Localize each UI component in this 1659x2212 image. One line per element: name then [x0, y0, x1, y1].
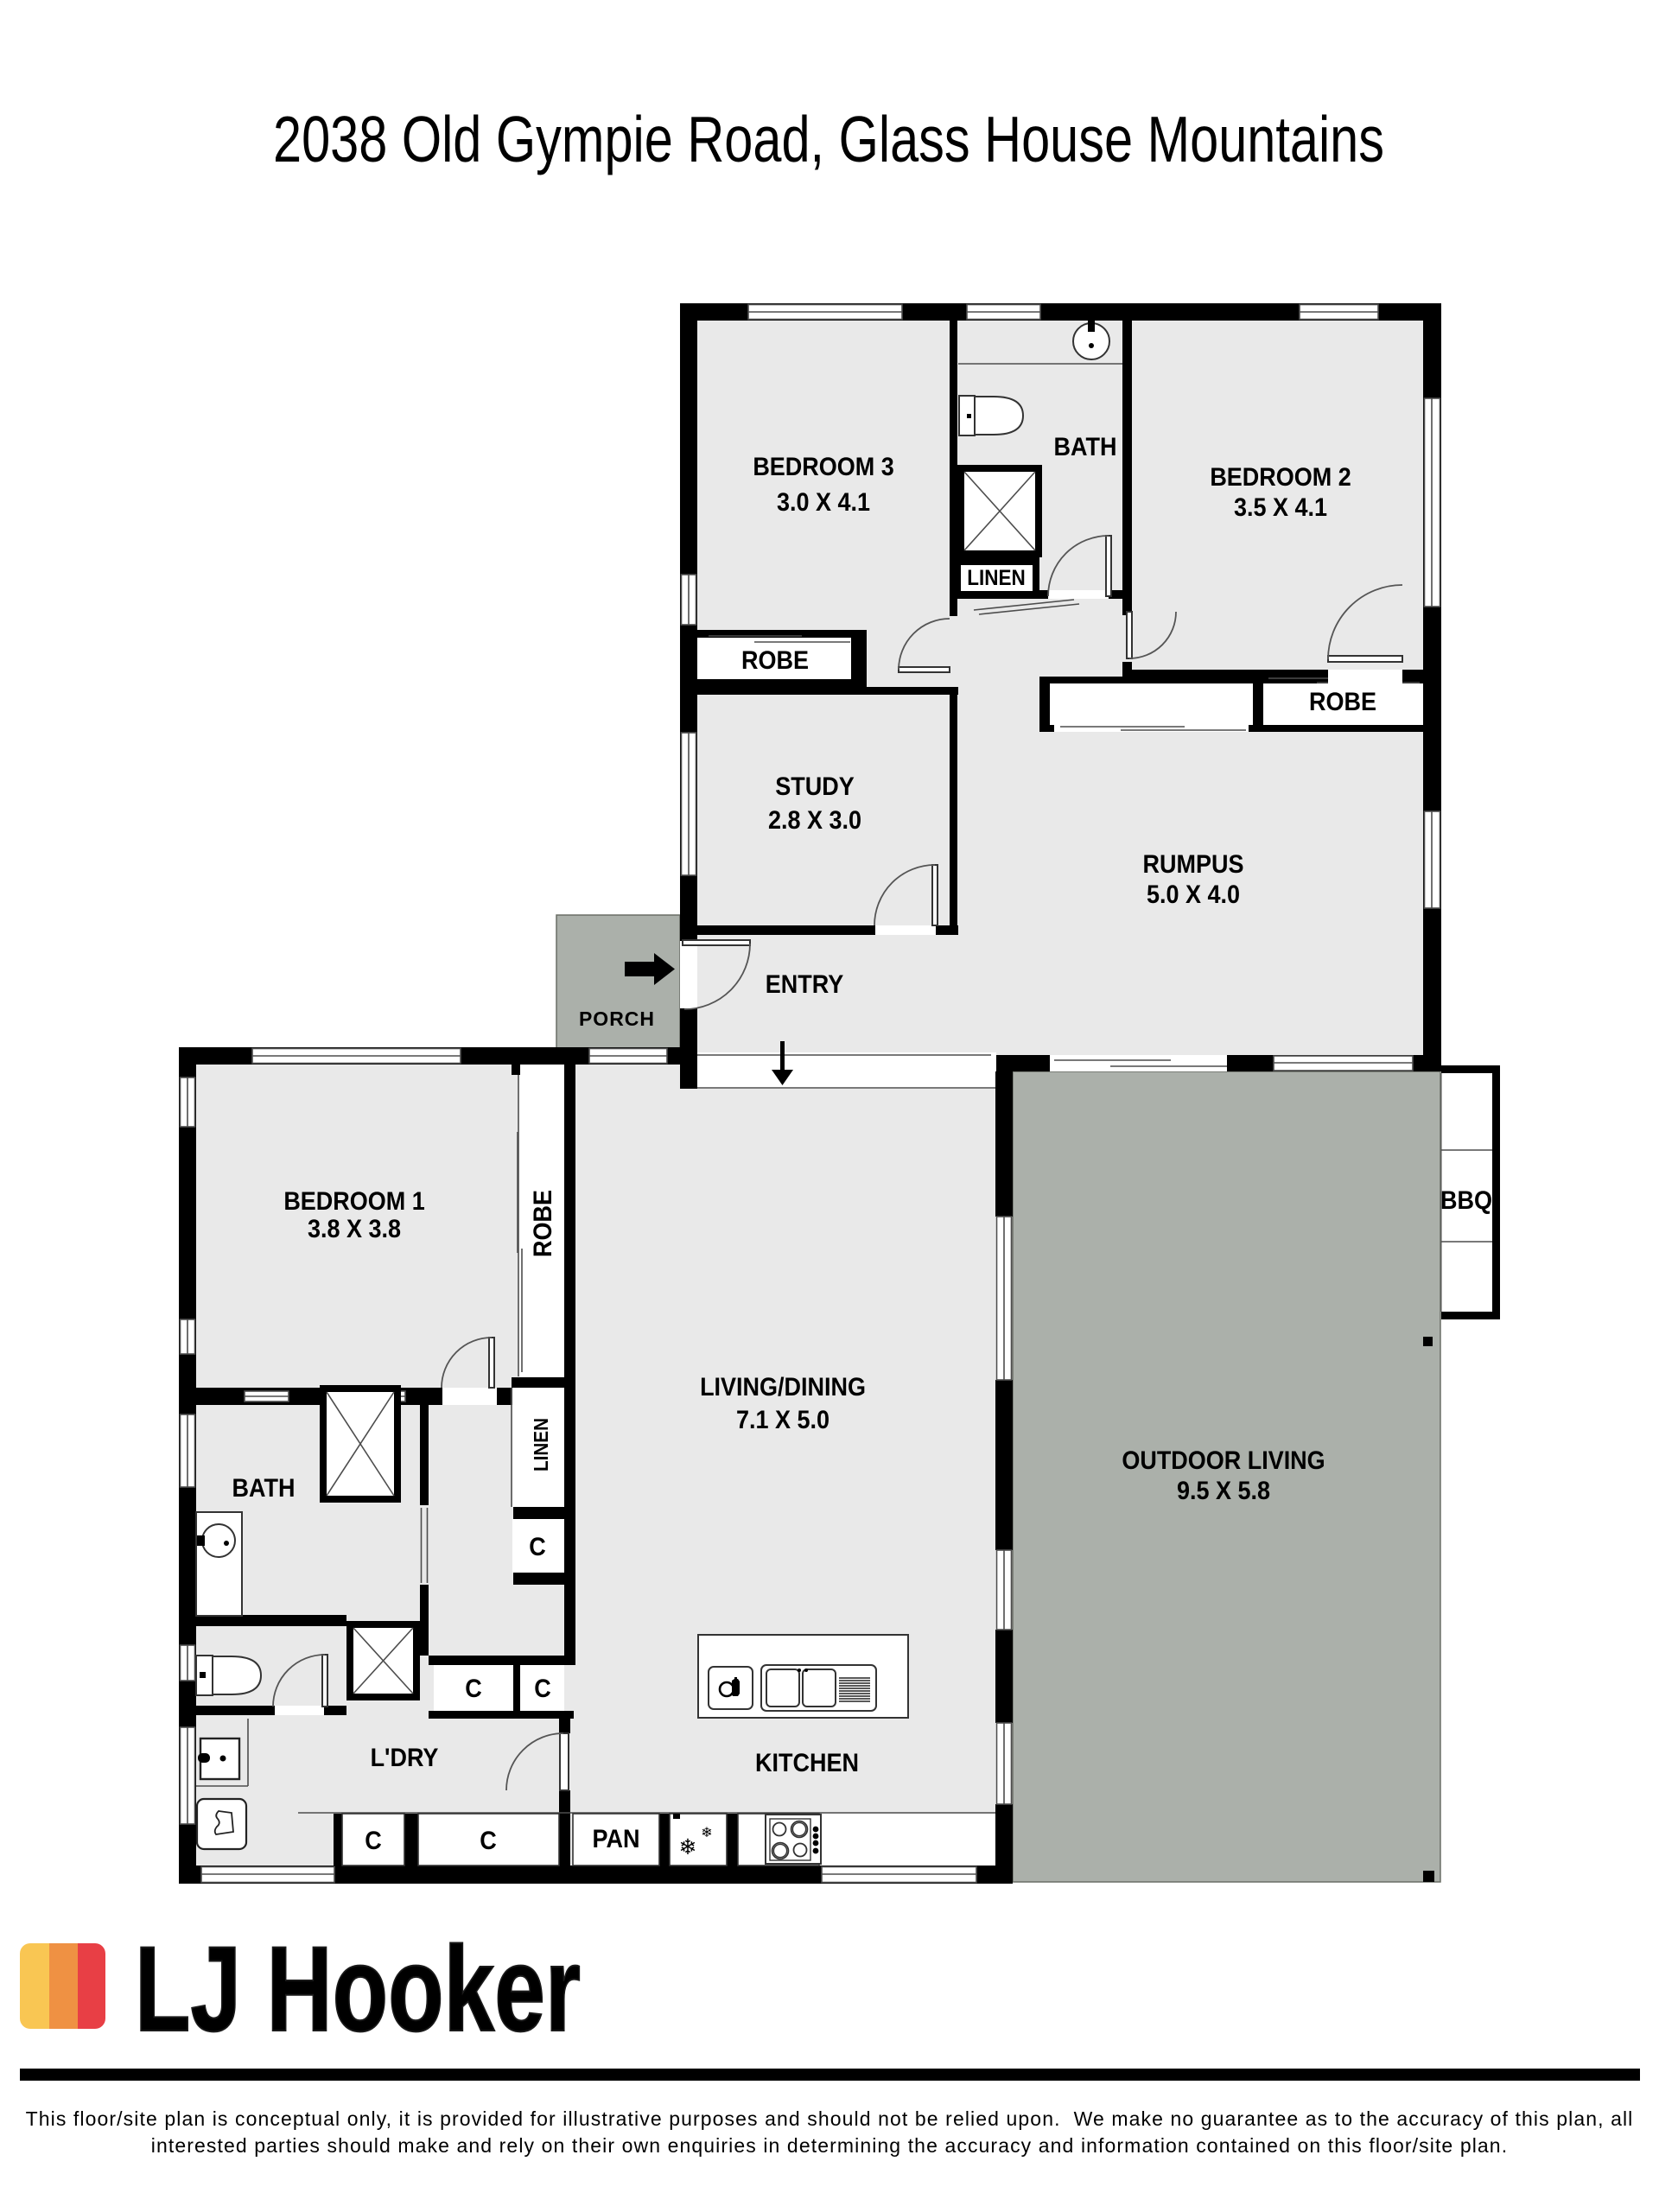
svg-text:5.0 X 4.0: 5.0 X 4.0 [1147, 880, 1240, 910]
svg-text:7.1 X 5.0: 7.1 X 5.0 [736, 1406, 829, 1435]
svg-text:PAN: PAN [593, 1825, 640, 1854]
svg-text:STUDY: STUDY [775, 772, 854, 802]
svg-text:BATH: BATH [232, 1474, 296, 1503]
svg-text:BBQ: BBQ [1440, 1186, 1492, 1216]
svg-text:RUMPUS: RUMPUS [1143, 850, 1244, 880]
svg-text:2038 Old Gympie Road, Glass Ho: 2038 Old Gympie Road, Glass House Mounta… [273, 103, 1384, 175]
svg-text:3.0 X 4.1: 3.0 X 4.1 [777, 488, 870, 518]
svg-text:ROBE: ROBE [741, 646, 809, 676]
svg-text:LINEN: LINEN [530, 1418, 552, 1471]
svg-text:❄: ❄ [679, 1835, 697, 1859]
svg-text:OUTDOOR LIVING: OUTDOOR LIVING [1122, 1446, 1325, 1476]
svg-text:BATH: BATH [1054, 433, 1117, 462]
svg-text:LINEN: LINEN [967, 566, 1025, 590]
svg-text:ENTRY: ENTRY [766, 970, 843, 1000]
svg-text:BEDROOM 3: BEDROOM 3 [753, 453, 893, 482]
svg-text:BEDROOM 2: BEDROOM 2 [1210, 463, 1351, 493]
svg-text:9.5 X 5.8: 9.5 X 5.8 [1177, 1477, 1270, 1506]
svg-text:C: C [465, 1675, 481, 1704]
svg-text:This floor/site plan is concep: This floor/site plan is conceptual only,… [26, 2107, 1634, 2130]
svg-text:PORCH: PORCH [579, 1007, 655, 1030]
svg-text:BEDROOM 1: BEDROOM 1 [283, 1187, 425, 1217]
svg-text:3.5 X 4.1: 3.5 X 4.1 [1234, 493, 1327, 523]
svg-text:LIVING/DINING: LIVING/DINING [700, 1373, 866, 1402]
svg-text:C: C [529, 1533, 545, 1562]
svg-text:C: C [534, 1675, 550, 1704]
svg-text:interested parties should make: interested parties should make and rely … [151, 2134, 1508, 2157]
svg-text:3.8 X 3.8: 3.8 X 3.8 [308, 1215, 401, 1244]
svg-text:LJ Hooker: LJ Hooker [135, 1921, 581, 2056]
svg-text:2.8 X 3.0: 2.8 X 3.0 [768, 806, 861, 836]
svg-text:C: C [480, 1827, 496, 1856]
svg-text:❄: ❄ [701, 1826, 712, 1840]
svg-text:L'DRY: L'DRY [371, 1744, 439, 1773]
svg-text:ROBE: ROBE [1309, 688, 1376, 717]
svg-text:KITCHEN: KITCHEN [755, 1749, 859, 1778]
svg-text:ROBE: ROBE [529, 1190, 558, 1257]
svg-text:C: C [365, 1827, 381, 1856]
